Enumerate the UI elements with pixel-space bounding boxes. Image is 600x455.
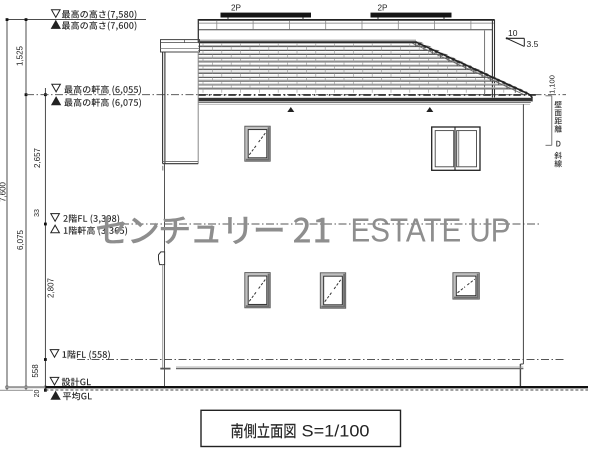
svg-text:3.5: 3.5 [527, 39, 539, 49]
svg-text:6,075: 6,075 [16, 229, 25, 250]
svg-text:558: 558 [31, 364, 40, 378]
svg-text:1,100: 1,100 [548, 75, 557, 94]
svg-text:20: 20 [34, 390, 41, 398]
svg-text:2,807: 2,807 [47, 277, 56, 298]
svg-text:1,525: 1,525 [16, 45, 25, 66]
svg-text:10: 10 [508, 28, 518, 38]
svg-text:ESTATE UP: ESTATE UP [351, 213, 511, 250]
svg-text:S=1/100: S=1/100 [302, 423, 370, 441]
svg-text:2P: 2P [231, 4, 242, 13]
svg-text:2,657: 2,657 [33, 147, 42, 168]
svg-text:33: 33 [34, 209, 41, 217]
svg-text:2P: 2P [378, 4, 389, 13]
svg-text:7,600: 7,600 [0, 181, 8, 202]
